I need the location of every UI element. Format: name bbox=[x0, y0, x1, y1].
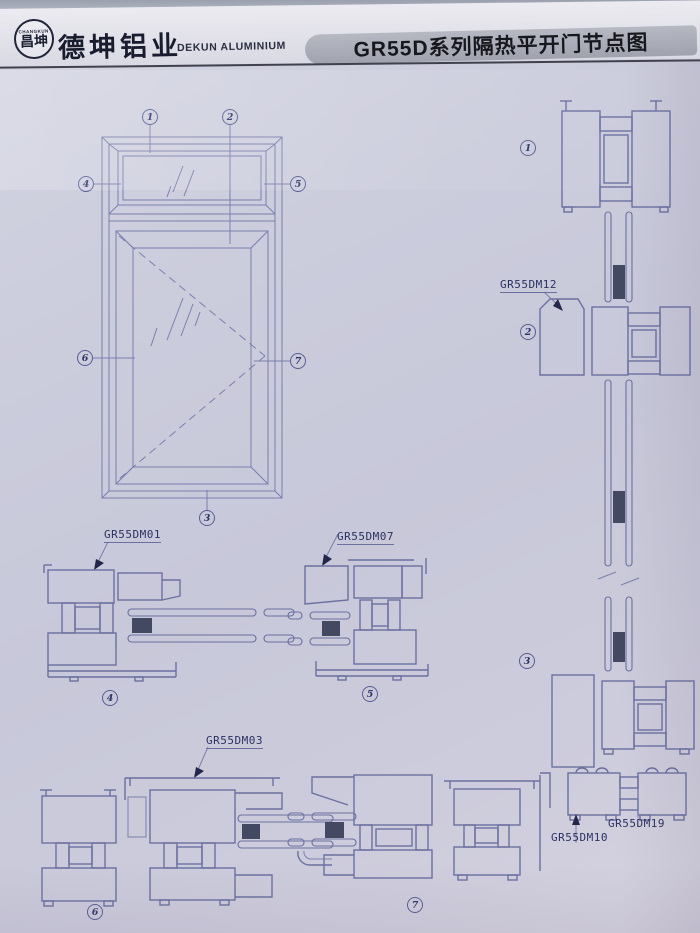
label-gr55dm10: GR55DM10 bbox=[551, 831, 608, 844]
detail-6-frame-profile bbox=[40, 790, 116, 906]
detail-5-drawing bbox=[288, 528, 503, 698]
glazing-run-2 bbox=[598, 380, 639, 671]
section-marker-4: 4 bbox=[102, 690, 118, 706]
section-marker-6: 6 bbox=[87, 904, 103, 920]
callout-5-elevation: 5 bbox=[290, 176, 306, 192]
label-gr55dm01: GR55DM01 bbox=[104, 528, 161, 543]
section-marker-7: 7 bbox=[407, 897, 423, 913]
callout-4-elevation: 4 bbox=[78, 176, 94, 192]
detail-4-drawing bbox=[40, 540, 290, 705]
elevation-frame bbox=[102, 137, 282, 498]
detail-7-frame-profile bbox=[444, 773, 550, 880]
section-3-sill-profile bbox=[552, 675, 694, 767]
section-marker-2: 2 bbox=[520, 324, 536, 340]
company-name-en: DEKUN ALUMINIUM bbox=[177, 40, 286, 54]
glazing-run-1 bbox=[605, 212, 632, 302]
label-gr55dm07: GR55DM07 bbox=[337, 530, 394, 545]
section-marker-1: 1 bbox=[520, 140, 536, 156]
elevation-door-leaf bbox=[116, 231, 268, 484]
section-marker-5: 5 bbox=[362, 686, 378, 702]
elevation-transom bbox=[109, 144, 275, 221]
callout-7-elevation: 7 bbox=[290, 353, 306, 369]
door-elevation-drawing bbox=[55, 90, 315, 545]
callout-6-elevation: 6 bbox=[77, 350, 93, 366]
section-2-transom-profile bbox=[540, 292, 690, 375]
section-marker-3: 3 bbox=[519, 653, 535, 669]
catalog-page: CHANGKUN 昌坤 德坤铝业 DEKUN ALUMINIUM GR55D系列… bbox=[0, 0, 700, 933]
label-gr55dm12: GR55DM12 bbox=[500, 278, 557, 293]
callout-3-elevation: 3 bbox=[199, 510, 215, 526]
detail-7-glazing bbox=[288, 813, 356, 865]
label-gr55dm19: GR55DM19 bbox=[608, 817, 665, 830]
logo-cn-text: 昌坤 bbox=[20, 34, 49, 50]
callout-1-elevation: 1 bbox=[142, 109, 158, 125]
vertical-sections-drawing bbox=[480, 85, 700, 875]
callout-2-elevation: 2 bbox=[222, 109, 238, 125]
detail-6-drawing bbox=[30, 745, 320, 920]
section-1-head-profile bbox=[560, 101, 670, 212]
label-gr55dm03: GR55DM03 bbox=[206, 734, 263, 749]
detail-7-drawing bbox=[288, 763, 573, 913]
company-name-cn: 德坤铝业 bbox=[58, 24, 183, 66]
